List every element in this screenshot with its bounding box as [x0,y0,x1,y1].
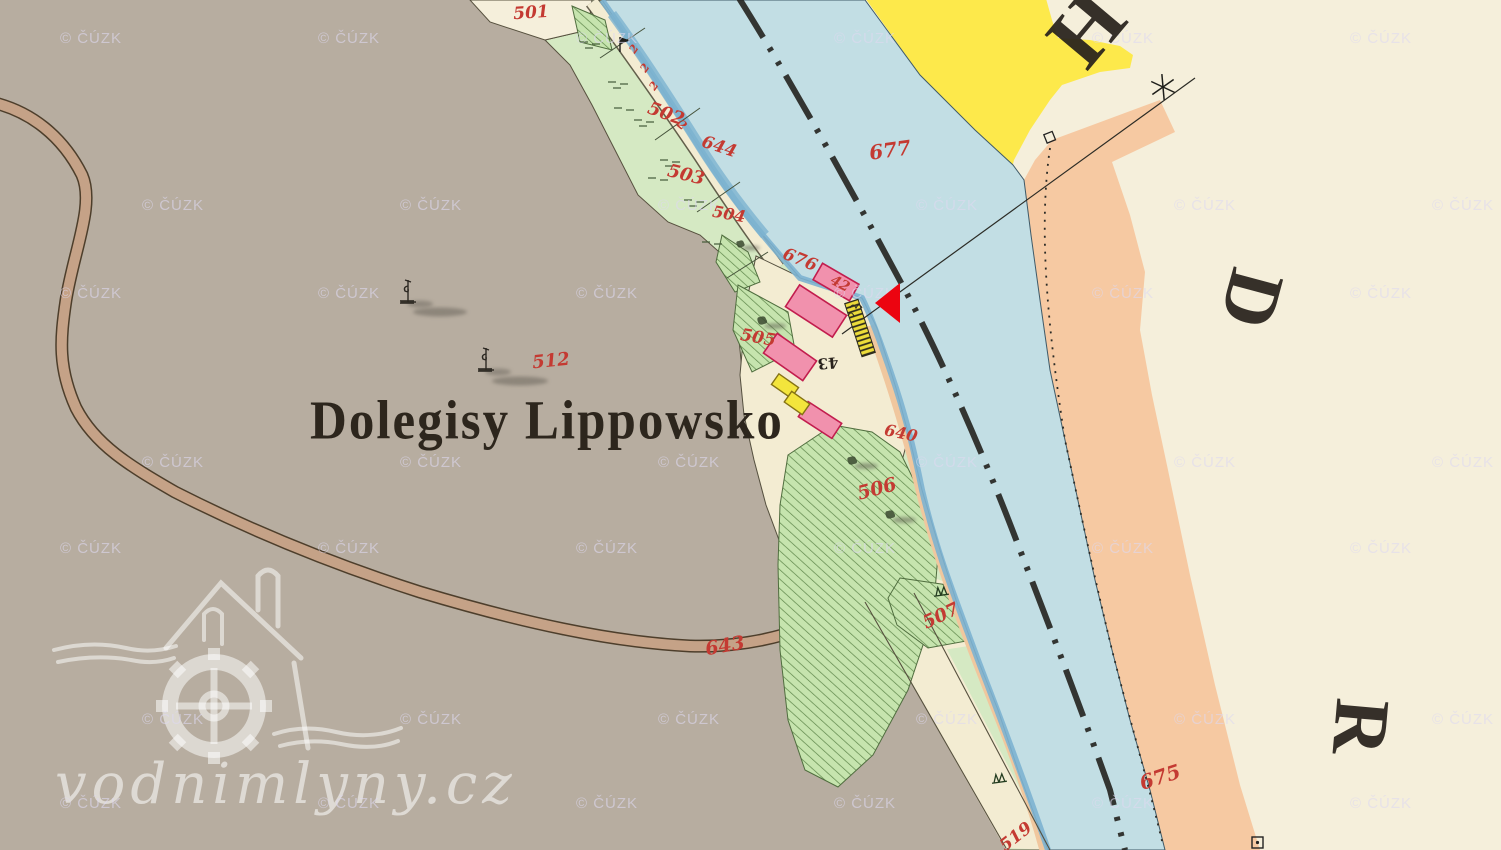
place-name-label: Dolegisy Lippowsko [310,390,784,453]
vodnimlyny-logo-text: vodnimlyny.cz [55,752,517,817]
map-canvas[interactable]: vodnimlyny.cz © ČÚZK© ČÚZK© ČÚZK© ČÚZK© … [0,0,1501,850]
mill-location-marker[interactable] [872,281,902,325]
mill-marker-triangle [875,283,900,323]
